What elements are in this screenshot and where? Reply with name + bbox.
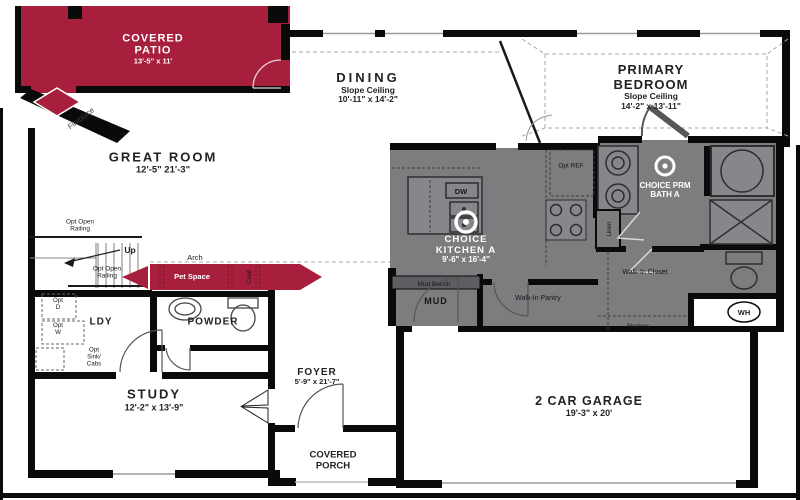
room-label-study: STUDY 12'-2" x 13'-9" [125, 388, 184, 413]
label-opt-washer: Opt W [51, 323, 65, 337]
label-up: Up [124, 240, 135, 258]
room-label-powder: POWDER [188, 316, 239, 327]
room-label-pet-space: Pet Space [174, 273, 210, 281]
label-opt-sink-cabs: Opt Sink/ Cabs [83, 348, 105, 369]
label-arch: Arch [187, 247, 202, 265]
room-label-garage: 2 CAR GARAGE 19'-3" x 20' [535, 394, 643, 418]
label-opt-dryer: Opt D [51, 298, 65, 312]
room-label-closet: Walk-In Closet [622, 269, 668, 277]
room-label-coat: Coat [238, 270, 256, 284]
floor-plan: COVERED PATIO 13'-5" x 11' GREAT ROOM 12… [0, 0, 800, 500]
room-label-mud: MUD [424, 296, 448, 306]
room-label-primary-bedroom: PRIMARY BEDROOM Slope Ceiling 14'-2" x 1… [595, 63, 707, 111]
water-heater-nook [688, 293, 776, 326]
room-label-choice-bath: CHOICE PRM BATH A [639, 182, 691, 200]
label-linen: Linen [598, 221, 616, 236]
room-label-dining: DINING Slope Ceiling 10'-11" x 14'-2" [336, 71, 400, 105]
label-shelves: Shelves [626, 315, 649, 333]
pet-space-shape [122, 262, 390, 290]
label-opt-open-railing-lower: Opt Open Railing [89, 266, 125, 281]
label-mud-bench: Mud Bench [418, 273, 451, 291]
room-label-covered-porch: COVERED PORCH [300, 450, 366, 471]
label-opt-ref: Opt REF [558, 162, 584, 169]
label-dishwasher: DW [455, 181, 468, 199]
room-label-choice-kitchen: CHOICE KITCHEN A 9'-6" x 16'-4" [424, 235, 508, 265]
room-label-pantry: Walk-In Pantry [515, 295, 561, 303]
room-label-ldy: LDY [90, 316, 113, 327]
label-water-heater: WH [738, 302, 751, 320]
room-label-covered-patio: COVERED PATIO 13'-5" x 11' [110, 32, 196, 65]
label-opt-open-railing-upper: Opt Open Railing [62, 219, 98, 234]
room-label-great-room: GREAT ROOM 12'-5" 21'-3" [109, 150, 218, 175]
room-label-foyer: FOYER 5'-9" x 21'-7" [295, 367, 340, 387]
